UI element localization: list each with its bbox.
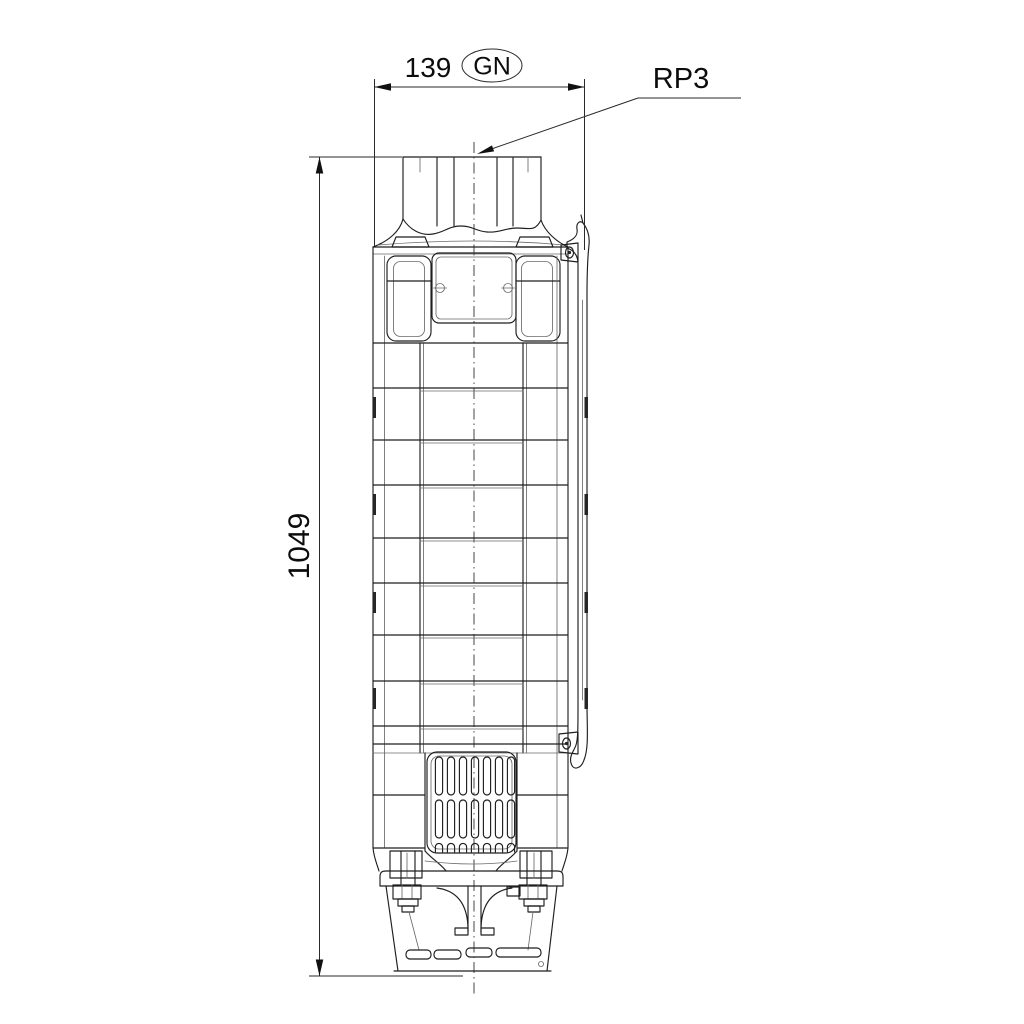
- dim-width-value: 139: [405, 52, 452, 83]
- motor-bolt-left: [393, 885, 421, 950]
- dim-height-value: 1049: [283, 513, 316, 580]
- motor-bolt-right: [507, 885, 547, 950]
- pump-discharge-flare: [373, 219, 568, 247]
- suction-interconnector: [373, 752, 568, 853]
- pump-thread-connection: [403, 157, 541, 226]
- callout-arrow: [477, 145, 494, 154]
- dim-arrow-right: [568, 83, 585, 91]
- pump-dimension-drawing: 139 GN RP3 1049: [0, 0, 1024, 1024]
- cable-clamp-left: [387, 256, 431, 341]
- dim-arrow-top: [316, 157, 324, 174]
- cable-guard: [559, 215, 589, 768]
- cable-clamp-right: [516, 256, 560, 341]
- technical-drawing-canvas: 139 GN RP3 1049: [0, 0, 1024, 1024]
- pump-head: [373, 237, 568, 343]
- cable-guard-bottom-hook: [559, 703, 587, 768]
- connection-callout-label: RP3: [653, 63, 709, 95]
- dim-arrow-left: [375, 83, 392, 91]
- callout-rp3: RP3: [477, 63, 741, 154]
- chamber-stack: [373, 256, 569, 848]
- motor-base: [380, 871, 563, 971]
- stage-lines: [373, 343, 568, 753]
- dim-arrow-bottom: [316, 960, 324, 977]
- dim-width-badge: GN: [473, 53, 511, 81]
- inlet-screen: [427, 752, 516, 853]
- dimension-width: 139 GN: [375, 49, 585, 250]
- motor-drain-hole: [539, 962, 544, 967]
